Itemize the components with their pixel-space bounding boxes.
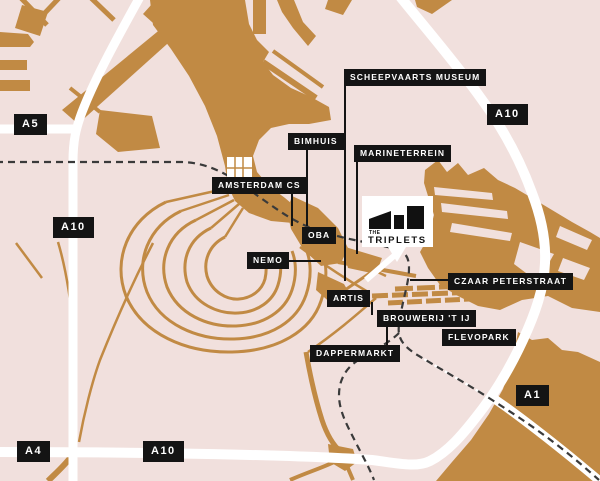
label-nemo: NEMO <box>247 252 289 269</box>
label-scheepvaarts-museum: SCHEEPVAARTS MUSEUM <box>344 69 486 86</box>
label-amsterdam-cs: AMSTERDAM CS <box>212 177 307 194</box>
label-dappermarkt: DAPPERMARKT <box>310 345 400 362</box>
label-brouwerij-t-ij: BROUWERIJ 'T IJ <box>377 310 476 327</box>
label-a10-west: A10 <box>53 217 94 238</box>
label-a10-south: A10 <box>143 441 184 462</box>
label-a4: A4 <box>17 441 50 462</box>
label-a1: A1 <box>516 385 549 406</box>
map-canvas <box>0 0 600 481</box>
label-marineterrein: MARINETERREIN <box>354 145 451 162</box>
station-icon <box>227 157 252 179</box>
label-bimhuis: BIMHUIS <box>288 133 344 150</box>
triplets-brand-name: TRIPLETS <box>368 236 427 246</box>
label-oba: OBA <box>302 227 336 244</box>
triplets-logo-bars-icon <box>369 205 426 230</box>
label-artis: ARTIS <box>327 290 370 307</box>
label-a10-northeast: A10 <box>487 104 528 125</box>
label-flevopark: FLEVOPARK <box>442 329 516 346</box>
label-a5: A5 <box>14 114 47 135</box>
triplets-location-callout: THE TRIPLETS <box>362 196 433 247</box>
label-czaar-peterstraat: CZAAR PETERSTRAAT <box>448 273 573 290</box>
amsterdam-map: SCHEEPVAARTS MUSEUM A10 A5 BIMHUIS MARIN… <box>0 0 600 481</box>
